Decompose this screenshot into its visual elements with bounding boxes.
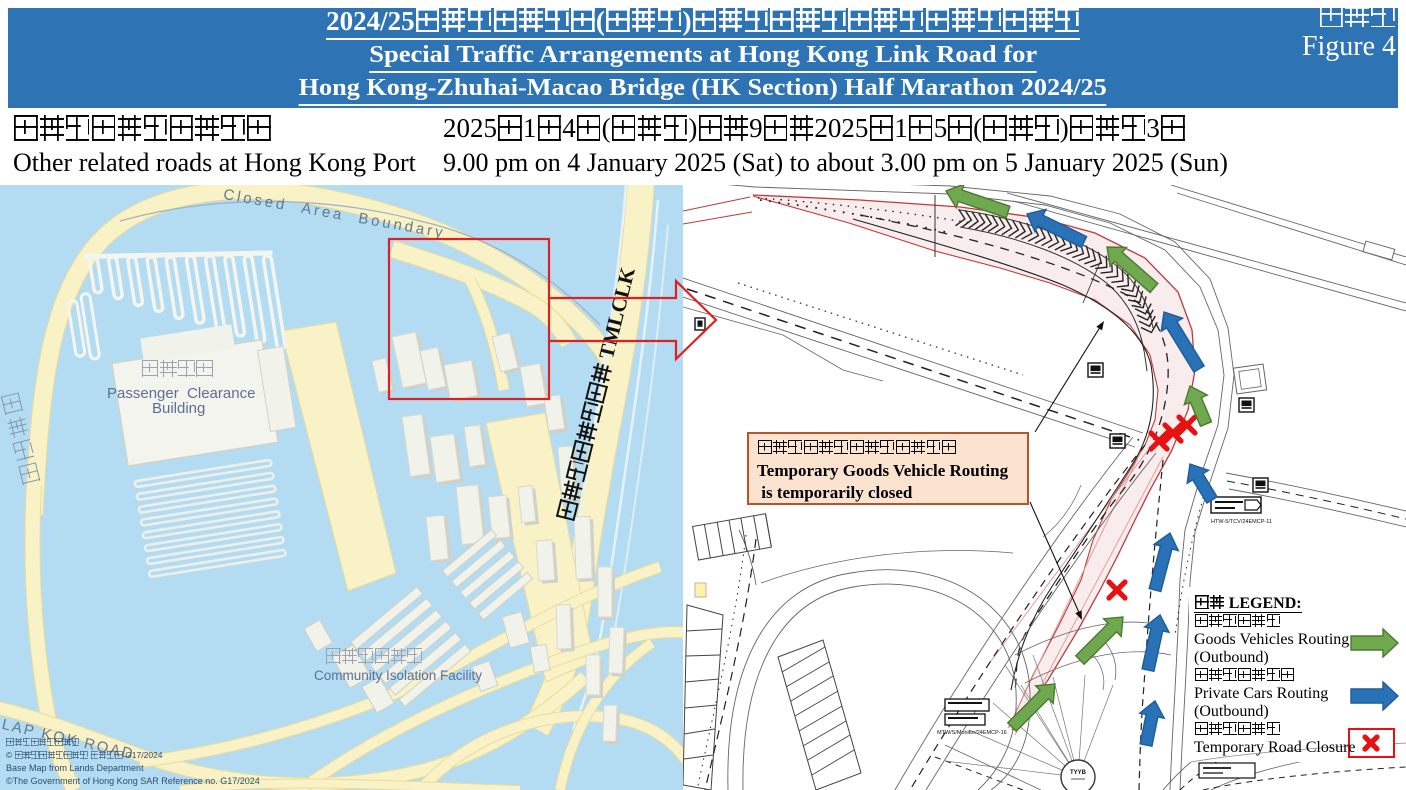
svg-text:HTW-5/TCV/24EMCP-11: HTW-5/TCV/24EMCP-11 bbox=[1211, 519, 1272, 525]
svg-text:MTW/S/Monitor/24EMCP-16: MTW/S/Monitor/24EMCP-16 bbox=[937, 730, 1007, 736]
svg-text:TYYB: TYYB bbox=[1070, 770, 1087, 776]
